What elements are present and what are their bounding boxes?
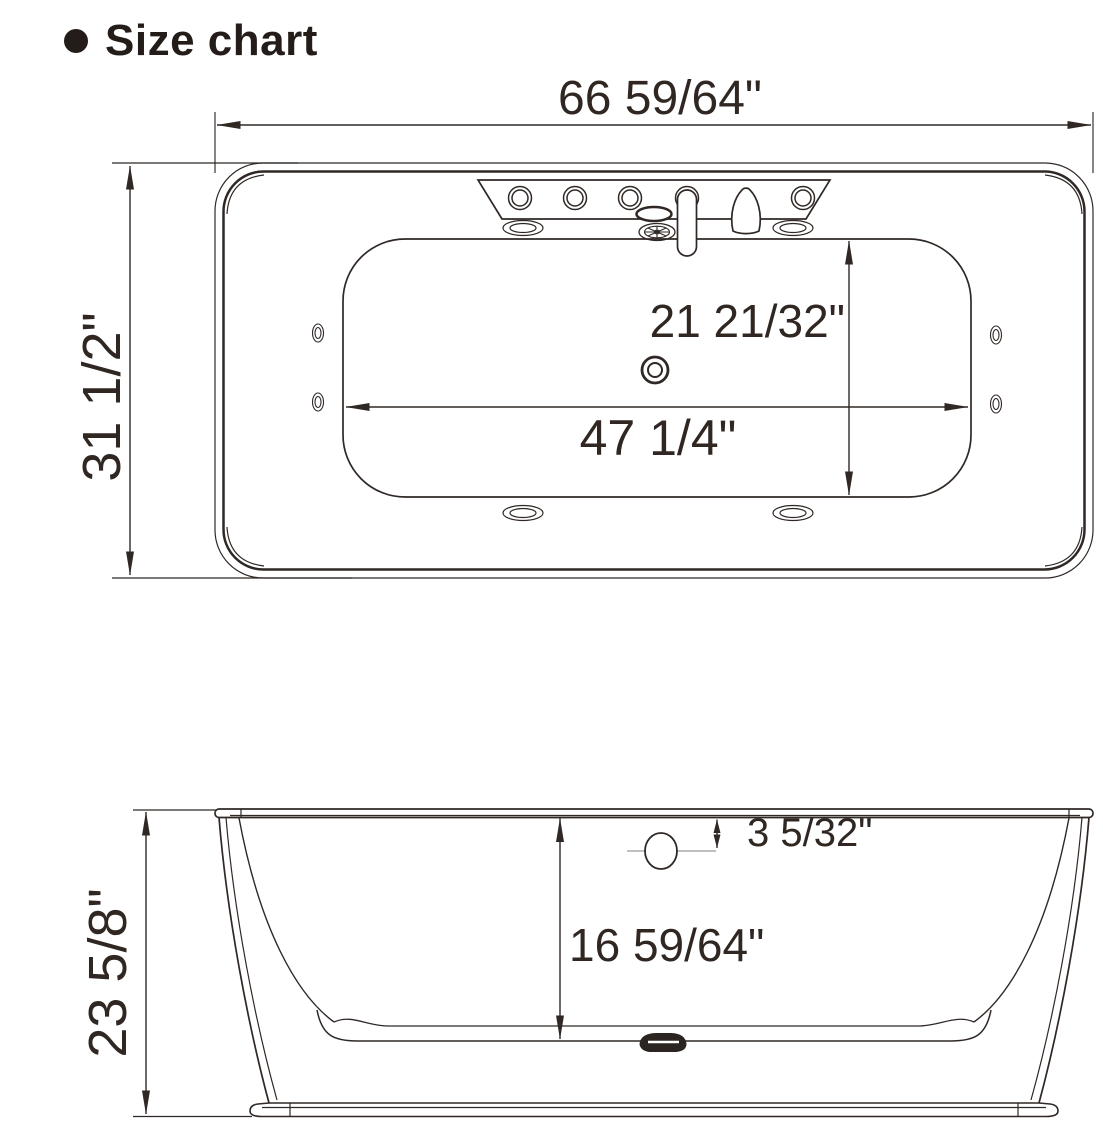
waste-rosette-icon [639, 224, 675, 241]
inner-depth-label: 16 59/64" [569, 919, 764, 971]
side-view: 23 5/8" 16 59/64" 3 5/32" [78, 809, 1093, 1117]
overall-depth-label: 31 1/2" [72, 312, 132, 481]
basin-length-label: 47 1/4" [580, 410, 737, 466]
bathtub-technical-drawing: 66 59/64" 31 1/2" 21 21/32" 47 1/4" [0, 0, 1103, 1123]
side-rim [215, 809, 1093, 818]
right-wall [974, 818, 1089, 1104]
left-wall [219, 818, 334, 1104]
dimension-overall-width: 66 59/64" [215, 72, 1093, 173]
overflow-to-rim-label: 3 5/32" [747, 811, 872, 855]
basin-width-label: 21 21/32" [650, 295, 845, 347]
side-drain-icon [640, 1034, 686, 1052]
dimension-overall-height: 23 5/8" [78, 810, 252, 1117]
overflow-icon [637, 207, 672, 221]
overflow-hole-icon [645, 833, 677, 869]
size-chart-page: Size chart [0, 0, 1103, 1123]
overall-width-label: 66 59/64" [558, 72, 762, 125]
top-view: 66 59/64" 31 1/2" 21 21/32" 47 1/4" [72, 72, 1093, 578]
overall-height-label: 23 5/8" [78, 888, 138, 1057]
base-plinth [250, 1103, 1058, 1117]
faucet-lever-icon [678, 190, 697, 256]
